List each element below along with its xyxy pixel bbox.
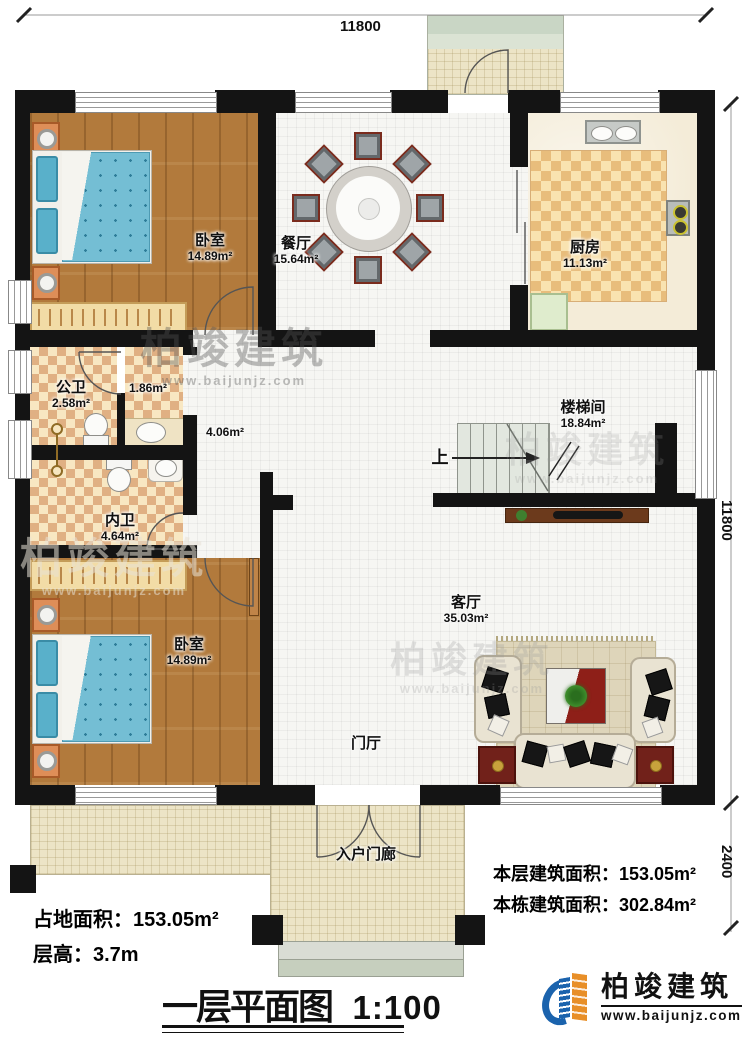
towel-bar xyxy=(52,424,62,476)
room-name: 公卫 xyxy=(52,380,90,397)
room-name: 厨房 xyxy=(563,240,607,257)
room-label-hallway: 4.06m² xyxy=(206,426,244,439)
room-label-foyer: 门厅 xyxy=(351,736,381,753)
room-label-public-bath: 公卫 2.58m² xyxy=(52,380,90,410)
brand-name: 柏竣建筑 xyxy=(601,972,742,1003)
room-area: 4.06m² xyxy=(206,426,244,439)
room-name: 楼梯间 xyxy=(560,400,605,417)
room-label-kitchen: 厨房 11.13m² xyxy=(563,240,607,270)
up-text: 上 xyxy=(432,448,449,467)
stat-floor-height: 层高：3.7m xyxy=(33,938,139,967)
room-area: 4.64m² xyxy=(101,530,139,543)
room-name: 入户门廊 xyxy=(336,847,396,864)
brand-building-icon xyxy=(543,972,595,1034)
room-area: 1.86m² xyxy=(129,382,167,395)
room-label-bedroom2: 卧室 14.89m² xyxy=(167,637,212,667)
room-name: 卧室 xyxy=(167,637,212,654)
room-area: 2.58m² xyxy=(52,397,90,410)
room-label-bedroom1: 卧室 14.89m² xyxy=(188,233,233,263)
brand-tower-orange xyxy=(572,973,587,1021)
room-label-vestibule: 1.86m² xyxy=(129,382,167,395)
room-label-entry-porch: 入户门廊 xyxy=(336,847,396,864)
room-label-ensuite: 内卫 4.64m² xyxy=(101,513,139,543)
room-area: 14.89m² xyxy=(188,250,233,263)
stair-detail xyxy=(452,424,579,491)
room-area: 11.13m² xyxy=(563,257,607,270)
door-arcs xyxy=(79,50,525,857)
door-arc xyxy=(147,513,183,549)
door-arc xyxy=(205,287,253,335)
room-name: 内卫 xyxy=(101,513,139,530)
door-arc xyxy=(465,50,508,93)
dimension-right-porch: 2400 xyxy=(718,845,735,878)
room-area: 15.64m² xyxy=(274,253,319,266)
stat-land-area: 占地面积：153.05m² xyxy=(33,903,219,932)
stat-floor-area: 本层建筑面积：153.05m² xyxy=(493,860,696,886)
room-name: 客厅 xyxy=(444,595,489,612)
brand-text: 柏竣建筑 www.baijunjz.com xyxy=(601,972,742,1023)
room-name: 卧室 xyxy=(188,233,233,250)
stat-total-area: 本栋建筑面积：302.84m² xyxy=(493,891,696,917)
brand-tower-blue xyxy=(559,977,570,1019)
sliding-door xyxy=(517,170,525,284)
stair-up-label: 上 xyxy=(432,448,449,467)
brand-logo: 柏竣建筑 www.baijunjz.com xyxy=(543,972,742,1034)
title-underline xyxy=(162,1025,404,1033)
dimension-lines xyxy=(17,8,738,935)
dimension-right: 11800 xyxy=(718,500,735,541)
room-label-stairwell: 楼梯间 18.84m² xyxy=(560,400,605,430)
title-scale: 1:100 xyxy=(352,989,441,1026)
room-name: 餐厅 xyxy=(274,236,319,253)
dimension-top: 11800 xyxy=(340,18,381,35)
up-arrow-head xyxy=(526,452,540,464)
door-arc xyxy=(205,558,253,606)
room-label-living: 客厅 35.03m² xyxy=(444,595,489,625)
title-text: 一层平面图 xyxy=(162,986,332,1027)
room-area: 18.84m² xyxy=(560,417,605,430)
drawing-title: 一层平面图 1:100 xyxy=(162,978,442,1030)
room-area: 35.03m² xyxy=(444,612,489,625)
room-area: 14.89m² xyxy=(167,654,212,667)
floor-plan: 11800 11800 2400 卧室 14.89m² 餐厅 15.64m² 厨… xyxy=(0,0,750,1042)
room-name: 门厅 xyxy=(351,736,381,753)
brand-url: www.baijunjz.com xyxy=(601,1005,742,1023)
room-label-dining: 餐厅 15.64m² xyxy=(274,236,319,266)
